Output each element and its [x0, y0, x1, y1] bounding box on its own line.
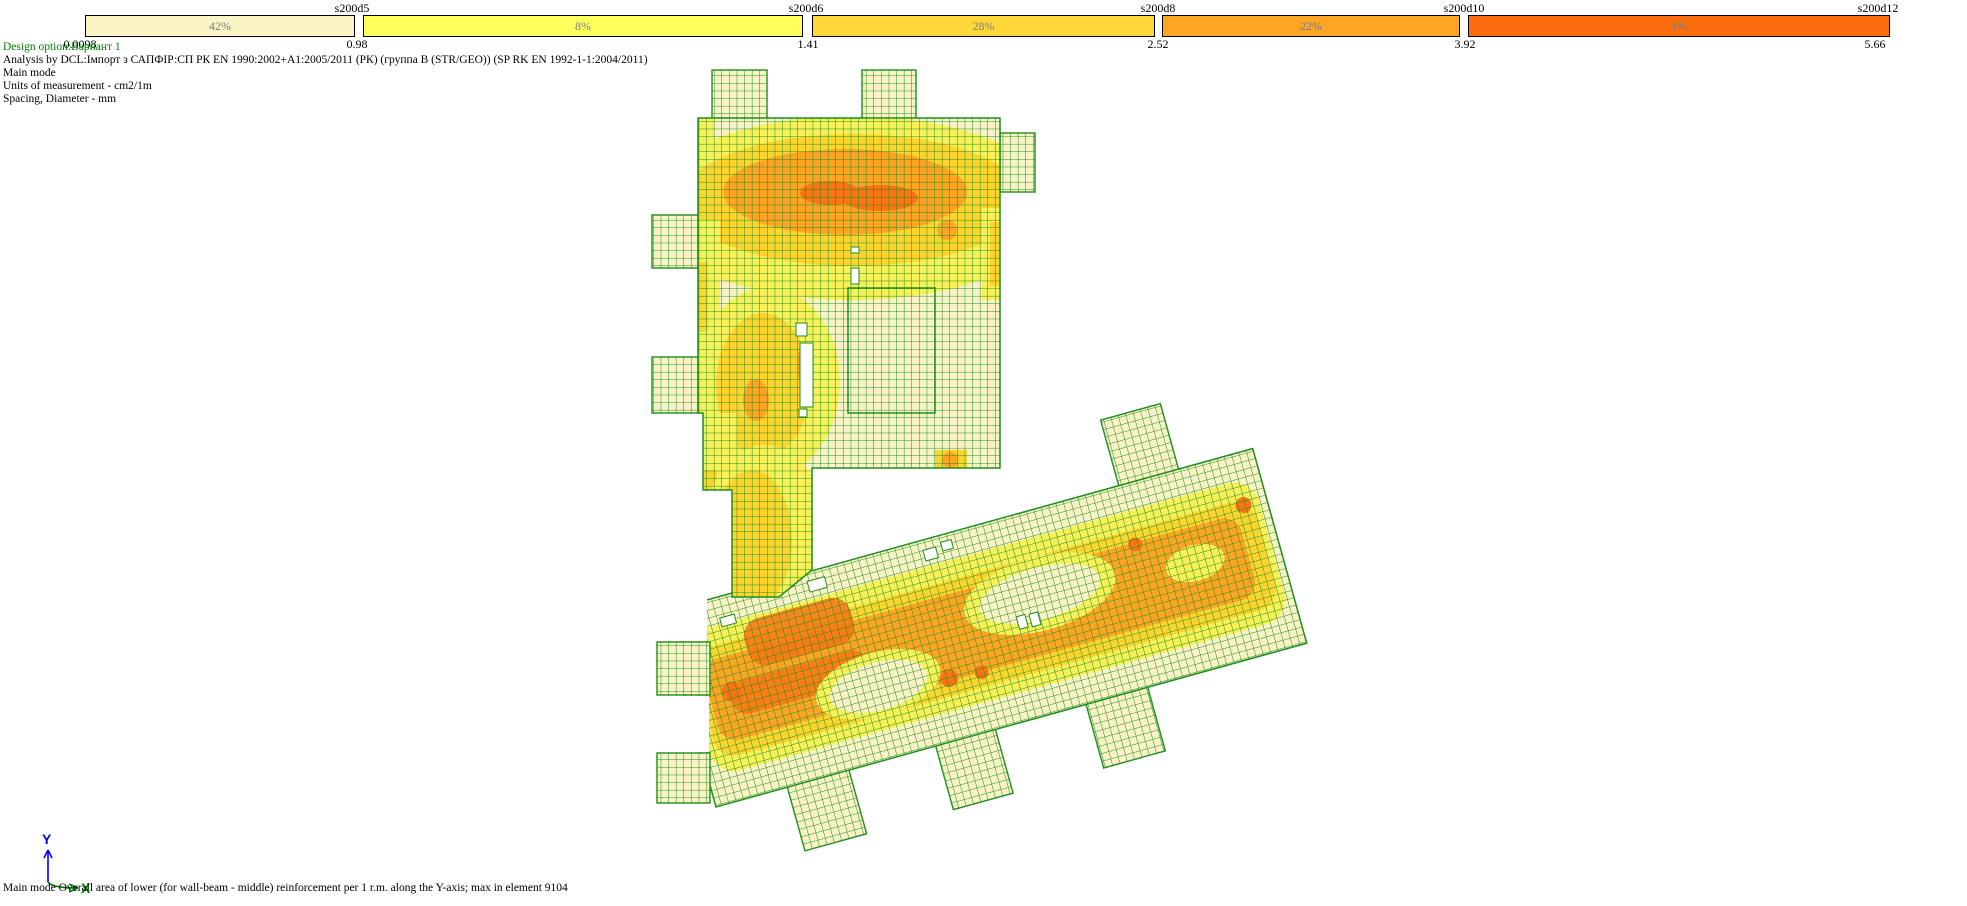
application-canvas: { "scale": { "percent_text_color": "#708… — [0, 0, 1967, 906]
status-line: Main mode Overall area of lower (for wal… — [3, 882, 568, 894]
y-axis-arrow: Y — [42, 831, 52, 882]
y-axis-label: Y — [42, 831, 52, 847]
mesh-viewport[interactable] — [0, 0, 1967, 906]
mesh-mask — [600, 578, 707, 641]
mesh-mask — [600, 696, 709, 752]
